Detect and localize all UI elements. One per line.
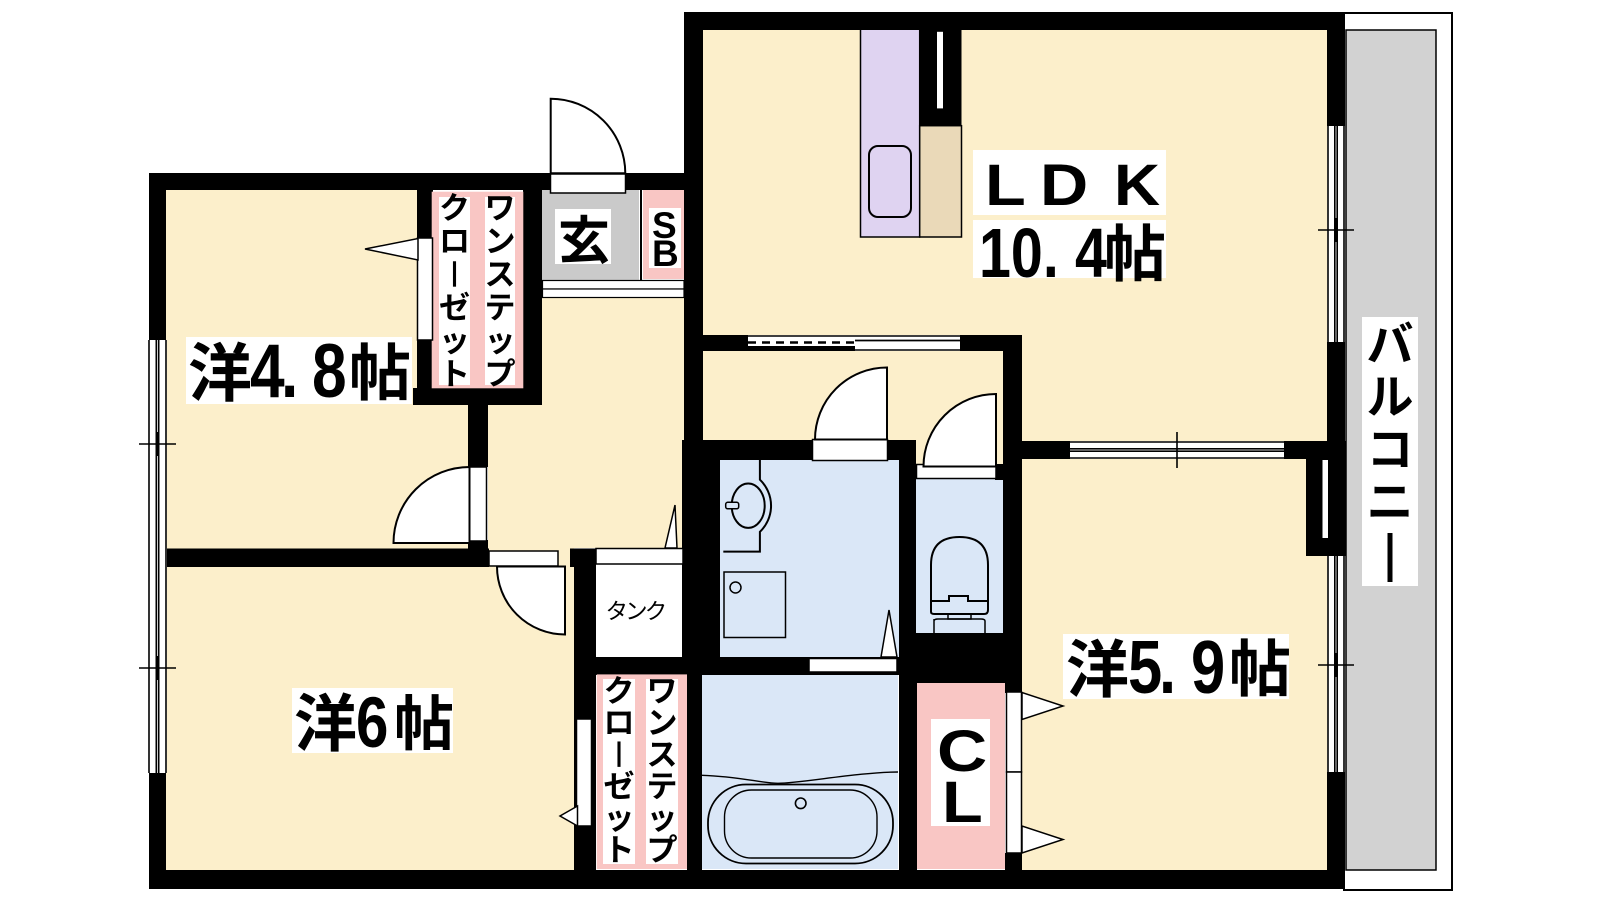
svg-text:5: 5 xyxy=(1128,625,1162,709)
svg-text:.: . xyxy=(281,328,298,413)
svg-text:B: B xyxy=(652,233,679,274)
svg-text:L: L xyxy=(942,770,983,835)
svg-text:.: . xyxy=(1159,625,1176,709)
svg-text:4: 4 xyxy=(1075,214,1107,293)
svg-text:L: L xyxy=(985,153,1026,218)
svg-text:6: 6 xyxy=(356,682,388,762)
svg-text:D: D xyxy=(1040,153,1088,218)
svg-text:8: 8 xyxy=(312,328,347,413)
svg-text:10.: 10. xyxy=(979,214,1059,293)
svg-text:9: 9 xyxy=(1191,625,1225,709)
svg-text:K: K xyxy=(1114,153,1160,218)
svg-text:4: 4 xyxy=(250,328,285,413)
